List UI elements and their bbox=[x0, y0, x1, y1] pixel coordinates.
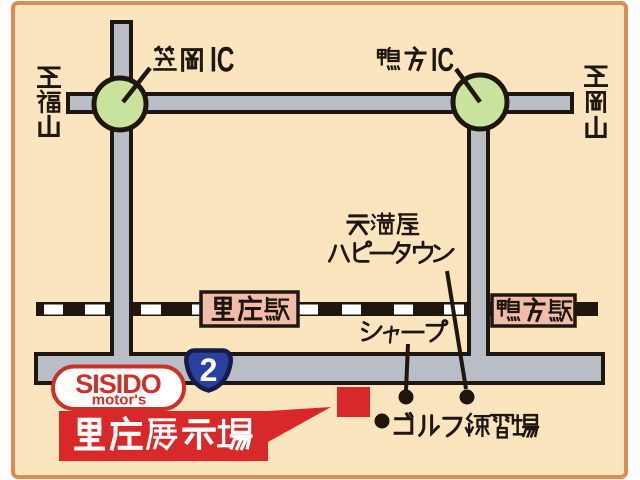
svg-text:IC: IC bbox=[210, 41, 234, 79]
svg-text:motor's: motor's bbox=[92, 392, 146, 409]
svg-text:IC: IC bbox=[431, 42, 454, 79]
svg-text:2: 2 bbox=[200, 352, 218, 388]
